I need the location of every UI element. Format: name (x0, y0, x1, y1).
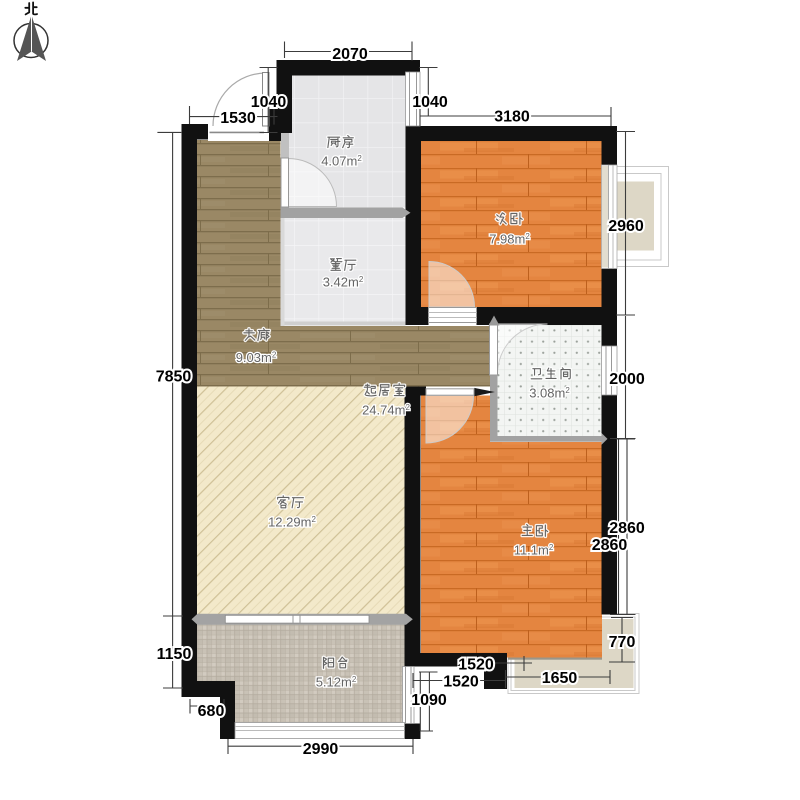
svg-text:1520: 1520 (458, 657, 494, 674)
svg-text:1040: 1040 (412, 94, 448, 111)
svg-text:3180: 3180 (494, 109, 530, 126)
svg-text:7850: 7850 (156, 369, 192, 386)
svg-text:24.74m2: 24.74m2 (362, 403, 410, 418)
svg-text:2000: 2000 (609, 371, 645, 388)
svg-text:12.29m2: 12.29m2 (268, 515, 316, 530)
svg-text:1650: 1650 (542, 670, 578, 687)
svg-text:2860: 2860 (609, 520, 645, 537)
svg-text:3.42m2: 3.42m2 (323, 275, 364, 290)
svg-text:2860: 2860 (592, 537, 628, 554)
svg-text:2070: 2070 (332, 46, 368, 63)
svg-text:2990: 2990 (303, 741, 339, 758)
svg-text:1530: 1530 (220, 110, 256, 127)
svg-text:770: 770 (609, 634, 636, 651)
svg-text:3.08m2: 3.08m2 (529, 386, 570, 401)
svg-text:11.1m2: 11.1m2 (514, 543, 554, 558)
svg-text:9.03m2: 9.03m2 (236, 350, 277, 365)
svg-text:1150: 1150 (157, 646, 192, 663)
svg-text:1040: 1040 (251, 94, 287, 111)
svg-text:1090: 1090 (411, 692, 447, 709)
svg-text:1520: 1520 (443, 674, 479, 691)
svg-text:7.98m2: 7.98m2 (489, 232, 530, 247)
svg-text:4.07m2: 4.07m2 (321, 154, 362, 169)
svg-text:5.12m2: 5.12m2 (316, 675, 357, 690)
svg-text:680: 680 (198, 703, 225, 720)
svg-text:2960: 2960 (608, 218, 644, 235)
